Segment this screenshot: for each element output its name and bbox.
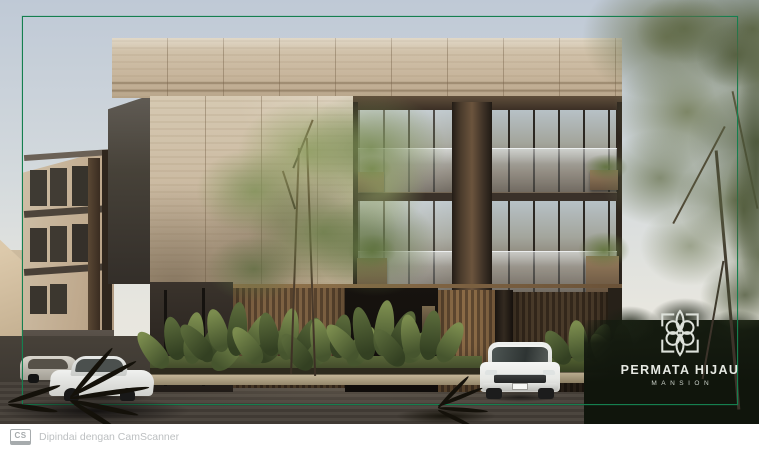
- logo-subtitle: MANSION: [647, 380, 713, 387]
- palm-base-mass: [0, 398, 190, 424]
- scanned-page: PERMATA HIJAU MANSION CS Dipindai dengan…: [0, 0, 759, 450]
- foliage-blob-over-frame: [724, 150, 759, 270]
- camscanner-watermark-text: Dipindai dengan CamScanner: [39, 431, 179, 443]
- palm-silhouette-group: [0, 380, 200, 424]
- palm-silhouette-group: [392, 396, 502, 424]
- scanner-watermark-strip: CS Dipindai dengan CamScanner: [0, 424, 759, 450]
- camscanner-badge-icon: CS: [10, 429, 31, 445]
- lotus-flower-icon: [653, 306, 707, 360]
- architectural-render-photo: PERMATA HIJAU MANSION: [0, 0, 759, 424]
- development-logo: PERMATA HIJAU MANSION: [606, 306, 754, 404]
- logo-title: PERMATA HIJAU: [621, 363, 740, 377]
